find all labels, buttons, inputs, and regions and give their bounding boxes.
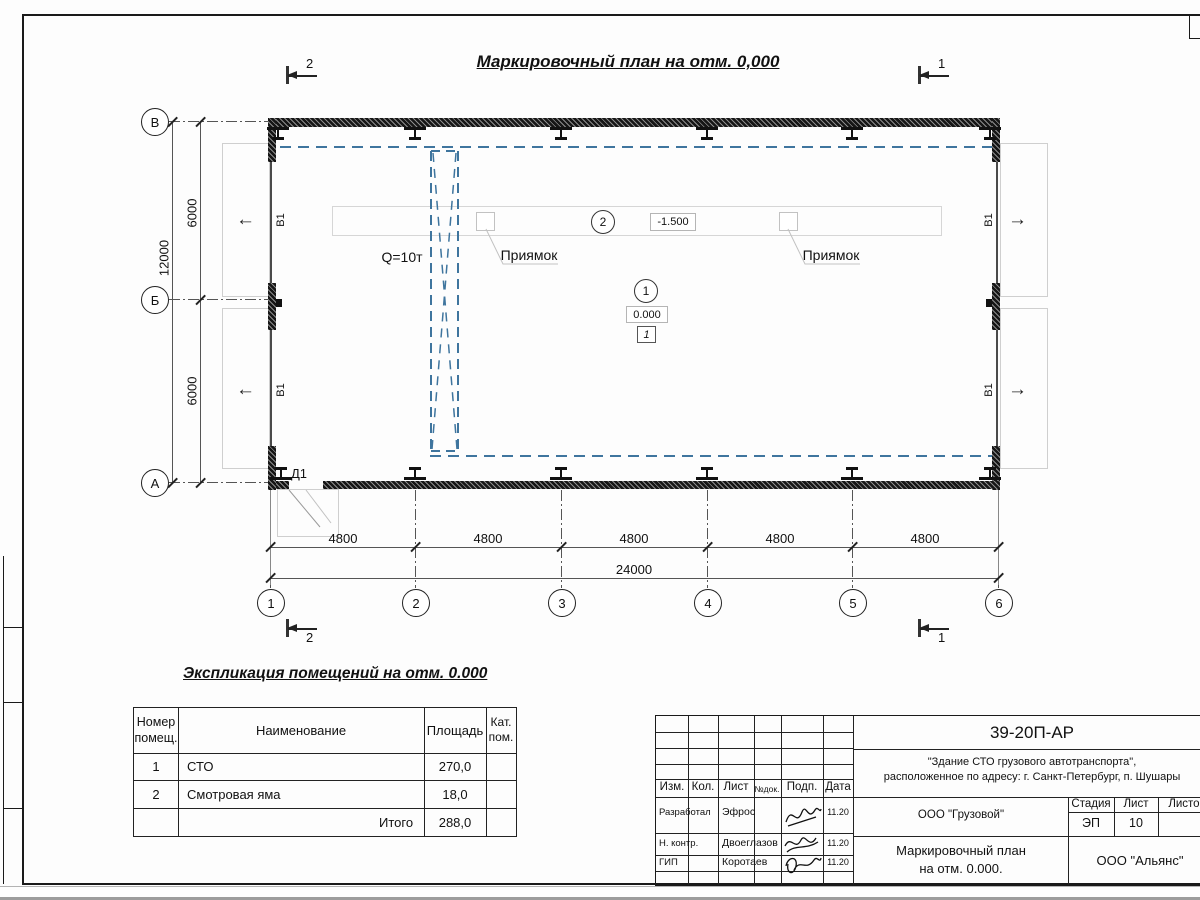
dim-4800-5: 4800 bbox=[911, 531, 940, 546]
dim-6000-bottom: 6000 bbox=[185, 377, 200, 406]
dim-line-left-inner bbox=[200, 122, 201, 483]
level-mark-pit: -1.500 bbox=[650, 213, 696, 231]
row2-num: 2 bbox=[152, 787, 159, 802]
axis-bubble-4: 4 bbox=[694, 589, 722, 617]
total-area: 288,0 bbox=[439, 815, 472, 830]
explication-title: Экспликация помещений на отм. 0.000 bbox=[183, 665, 487, 683]
tb-role-3: ГИП bbox=[659, 857, 678, 868]
axis-bubble-V: В bbox=[141, 108, 169, 136]
signature-icon bbox=[782, 800, 823, 880]
tb-col-doc: №док. bbox=[755, 784, 780, 794]
filing-div-3 bbox=[3, 808, 23, 809]
dim-4800-2: 4800 bbox=[474, 531, 503, 546]
crane-path-and-leaders bbox=[0, 0, 1200, 700]
witness-line-1 bbox=[270, 490, 271, 585]
window-tag-right-bottom: В1 bbox=[983, 383, 995, 396]
dim-4800-1: 4800 bbox=[329, 531, 358, 546]
arrow-right-icon: → bbox=[1008, 209, 1027, 231]
level-mark-main: 0.000 bbox=[626, 306, 668, 323]
tb-col-data: Дата bbox=[825, 781, 850, 793]
object-name-line2: расположенное по адресу: г. Санкт-Петерб… bbox=[884, 771, 1180, 783]
row1-area: 270,0 bbox=[439, 759, 472, 774]
stage-value: ЭП bbox=[1082, 816, 1100, 830]
org-name: ООО "Альянс" bbox=[1097, 853, 1184, 868]
dim-4800-4: 4800 bbox=[766, 531, 795, 546]
dim-12000: 12000 bbox=[157, 240, 172, 276]
drawing-sheet: Маркировочный план на отм. 0,000 2 1 2 1 bbox=[0, 0, 1200, 900]
tb-name-1: Эфрос bbox=[722, 806, 755, 818]
axis-bubble-3: 3 bbox=[548, 589, 576, 617]
company-name: ООО "Грузовой" bbox=[918, 809, 1004, 821]
explication-table: Номер помещ. Наименование Площадь Кат. п… bbox=[133, 707, 517, 837]
pit-label-1: Приямок bbox=[501, 247, 558, 263]
title-block: Изм. Кол. Лист №док. Подп. Дата Разработ… bbox=[655, 715, 1200, 886]
tb-name-3: Коротаев bbox=[722, 856, 767, 868]
dim-line-left-outer bbox=[172, 122, 173, 483]
axis-bubble-2: 2 bbox=[402, 589, 430, 617]
filing-div-2 bbox=[3, 702, 23, 703]
arrow-left-icon: ← bbox=[236, 209, 255, 231]
axis-bubble-A: А bbox=[141, 469, 169, 497]
col-header-cat: Кат. пом. bbox=[486, 715, 516, 745]
dim-24000: 24000 bbox=[616, 562, 652, 577]
tb-name-2: Двоеглазов bbox=[722, 837, 778, 849]
total-label: Итого bbox=[379, 815, 413, 830]
room-marker-1: 1 bbox=[634, 279, 658, 303]
tb-col-izm: Изм. bbox=[660, 781, 685, 793]
axis-bubble-5: 5 bbox=[839, 589, 867, 617]
row1-name: СТО bbox=[187, 759, 213, 774]
sheet-value: 10 bbox=[1129, 816, 1143, 830]
stage-label: Стадия bbox=[1071, 798, 1110, 810]
col-header-area: Площадь bbox=[427, 723, 484, 738]
window-tag-left-top: В1 bbox=[275, 213, 287, 226]
drawing-name-line2: на отм. 0.000. bbox=[919, 861, 1002, 876]
door-label: Д1 bbox=[291, 466, 307, 481]
pit-label-2: Приямок bbox=[803, 247, 860, 263]
dim-line-bottom-inner bbox=[270, 547, 998, 548]
tb-role-2: Н. контр. bbox=[659, 838, 698, 849]
crane-capacity-label: Q=10т bbox=[381, 249, 422, 265]
sheet-label: Лист bbox=[1124, 798, 1149, 810]
witness-line-6 bbox=[998, 490, 999, 585]
tb-col-kol: Кол. bbox=[692, 781, 715, 793]
window-tag-left-bottom: В1 bbox=[275, 383, 287, 396]
drawing-name-line1: Маркировочный план bbox=[896, 843, 1026, 858]
doc-number: 39-20П-АР bbox=[990, 723, 1074, 743]
tb-col-podp: Подп. bbox=[787, 781, 818, 793]
row1-num: 1 bbox=[152, 759, 159, 774]
room-marker-2: 2 bbox=[591, 210, 615, 234]
tb-date-3: 11.20 bbox=[827, 857, 849, 867]
row2-name: Смотровая яма bbox=[187, 787, 281, 802]
dim-line-bottom-outer bbox=[270, 578, 998, 579]
axis-bubble-1: 1 bbox=[257, 589, 285, 617]
paper-edge-1 bbox=[0, 886, 1200, 887]
tb-date-1: 11.20 bbox=[827, 807, 849, 817]
window-tag-right-top: В1 bbox=[983, 213, 995, 226]
axis-bubble-B: Б bbox=[141, 286, 169, 314]
arrow-right-icon: → bbox=[1008, 379, 1027, 401]
dim-4800-3: 4800 bbox=[620, 531, 649, 546]
dim-6000-top: 6000 bbox=[185, 199, 200, 228]
tb-date-2: 11.20 bbox=[827, 838, 849, 848]
tb-role-1: Разработал bbox=[659, 807, 711, 818]
tb-col-list: Лист bbox=[724, 781, 749, 793]
col-header-num: Номер помещ. bbox=[134, 715, 178, 746]
arrow-left-icon: ← bbox=[236, 379, 255, 401]
axis-bubble-6: 6 bbox=[985, 589, 1013, 617]
floor-type-mark: 1 bbox=[637, 326, 656, 343]
col-header-name: Наименование bbox=[256, 723, 346, 738]
object-name-line1: "Здание СТО грузового автотранспорта", bbox=[928, 756, 1137, 768]
sheets-label: Листов bbox=[1168, 798, 1200, 810]
row2-area: 18,0 bbox=[442, 787, 467, 802]
